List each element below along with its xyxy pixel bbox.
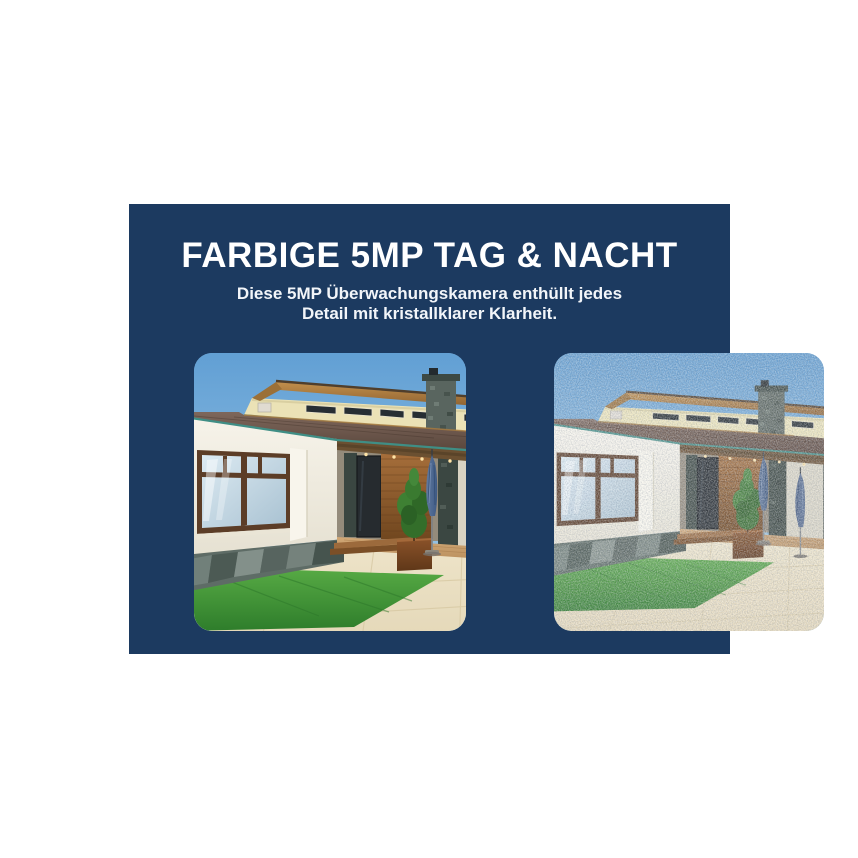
ad-canvas: FARBIGE 5MP TAG & NACHT Diese 5MP Überwa…: [0, 0, 858, 858]
label-andere-2k: Andere-2K: [434, 652, 704, 673]
promo-banner: FARBIGE 5MP TAG & NACHT Diese 5MP Überwa…: [129, 204, 730, 654]
house-scene: [194, 353, 466, 631]
comparison-photos: [154, 337, 705, 647]
label-argus-5mp: Argus 3 Pro-5MP: [154, 652, 426, 673]
banner-subtitle: Diese 5MP Überwachungskamera enthüllt je…: [129, 284, 730, 324]
banner-title: FARBIGE 5MP TAG & NACHT: [129, 235, 730, 277]
noise-overlay-dark: [554, 353, 824, 631]
subtitle-line-2: Detail mit kristallklarer Klarheit.: [302, 304, 557, 323]
house-photo-noisy-svg: [554, 353, 824, 631]
comparison-labels: Argus 3 Pro-5MP Andere-2K: [154, 652, 705, 673]
subtitle-line-1: Diese 5MP Überwachungskamera enthüllt je…: [237, 284, 622, 303]
comparison-photo-argus-5mp: [194, 353, 466, 631]
house-photo-clear-svg: [194, 353, 466, 631]
comparison-photo-andere-2k: [554, 353, 824, 631]
